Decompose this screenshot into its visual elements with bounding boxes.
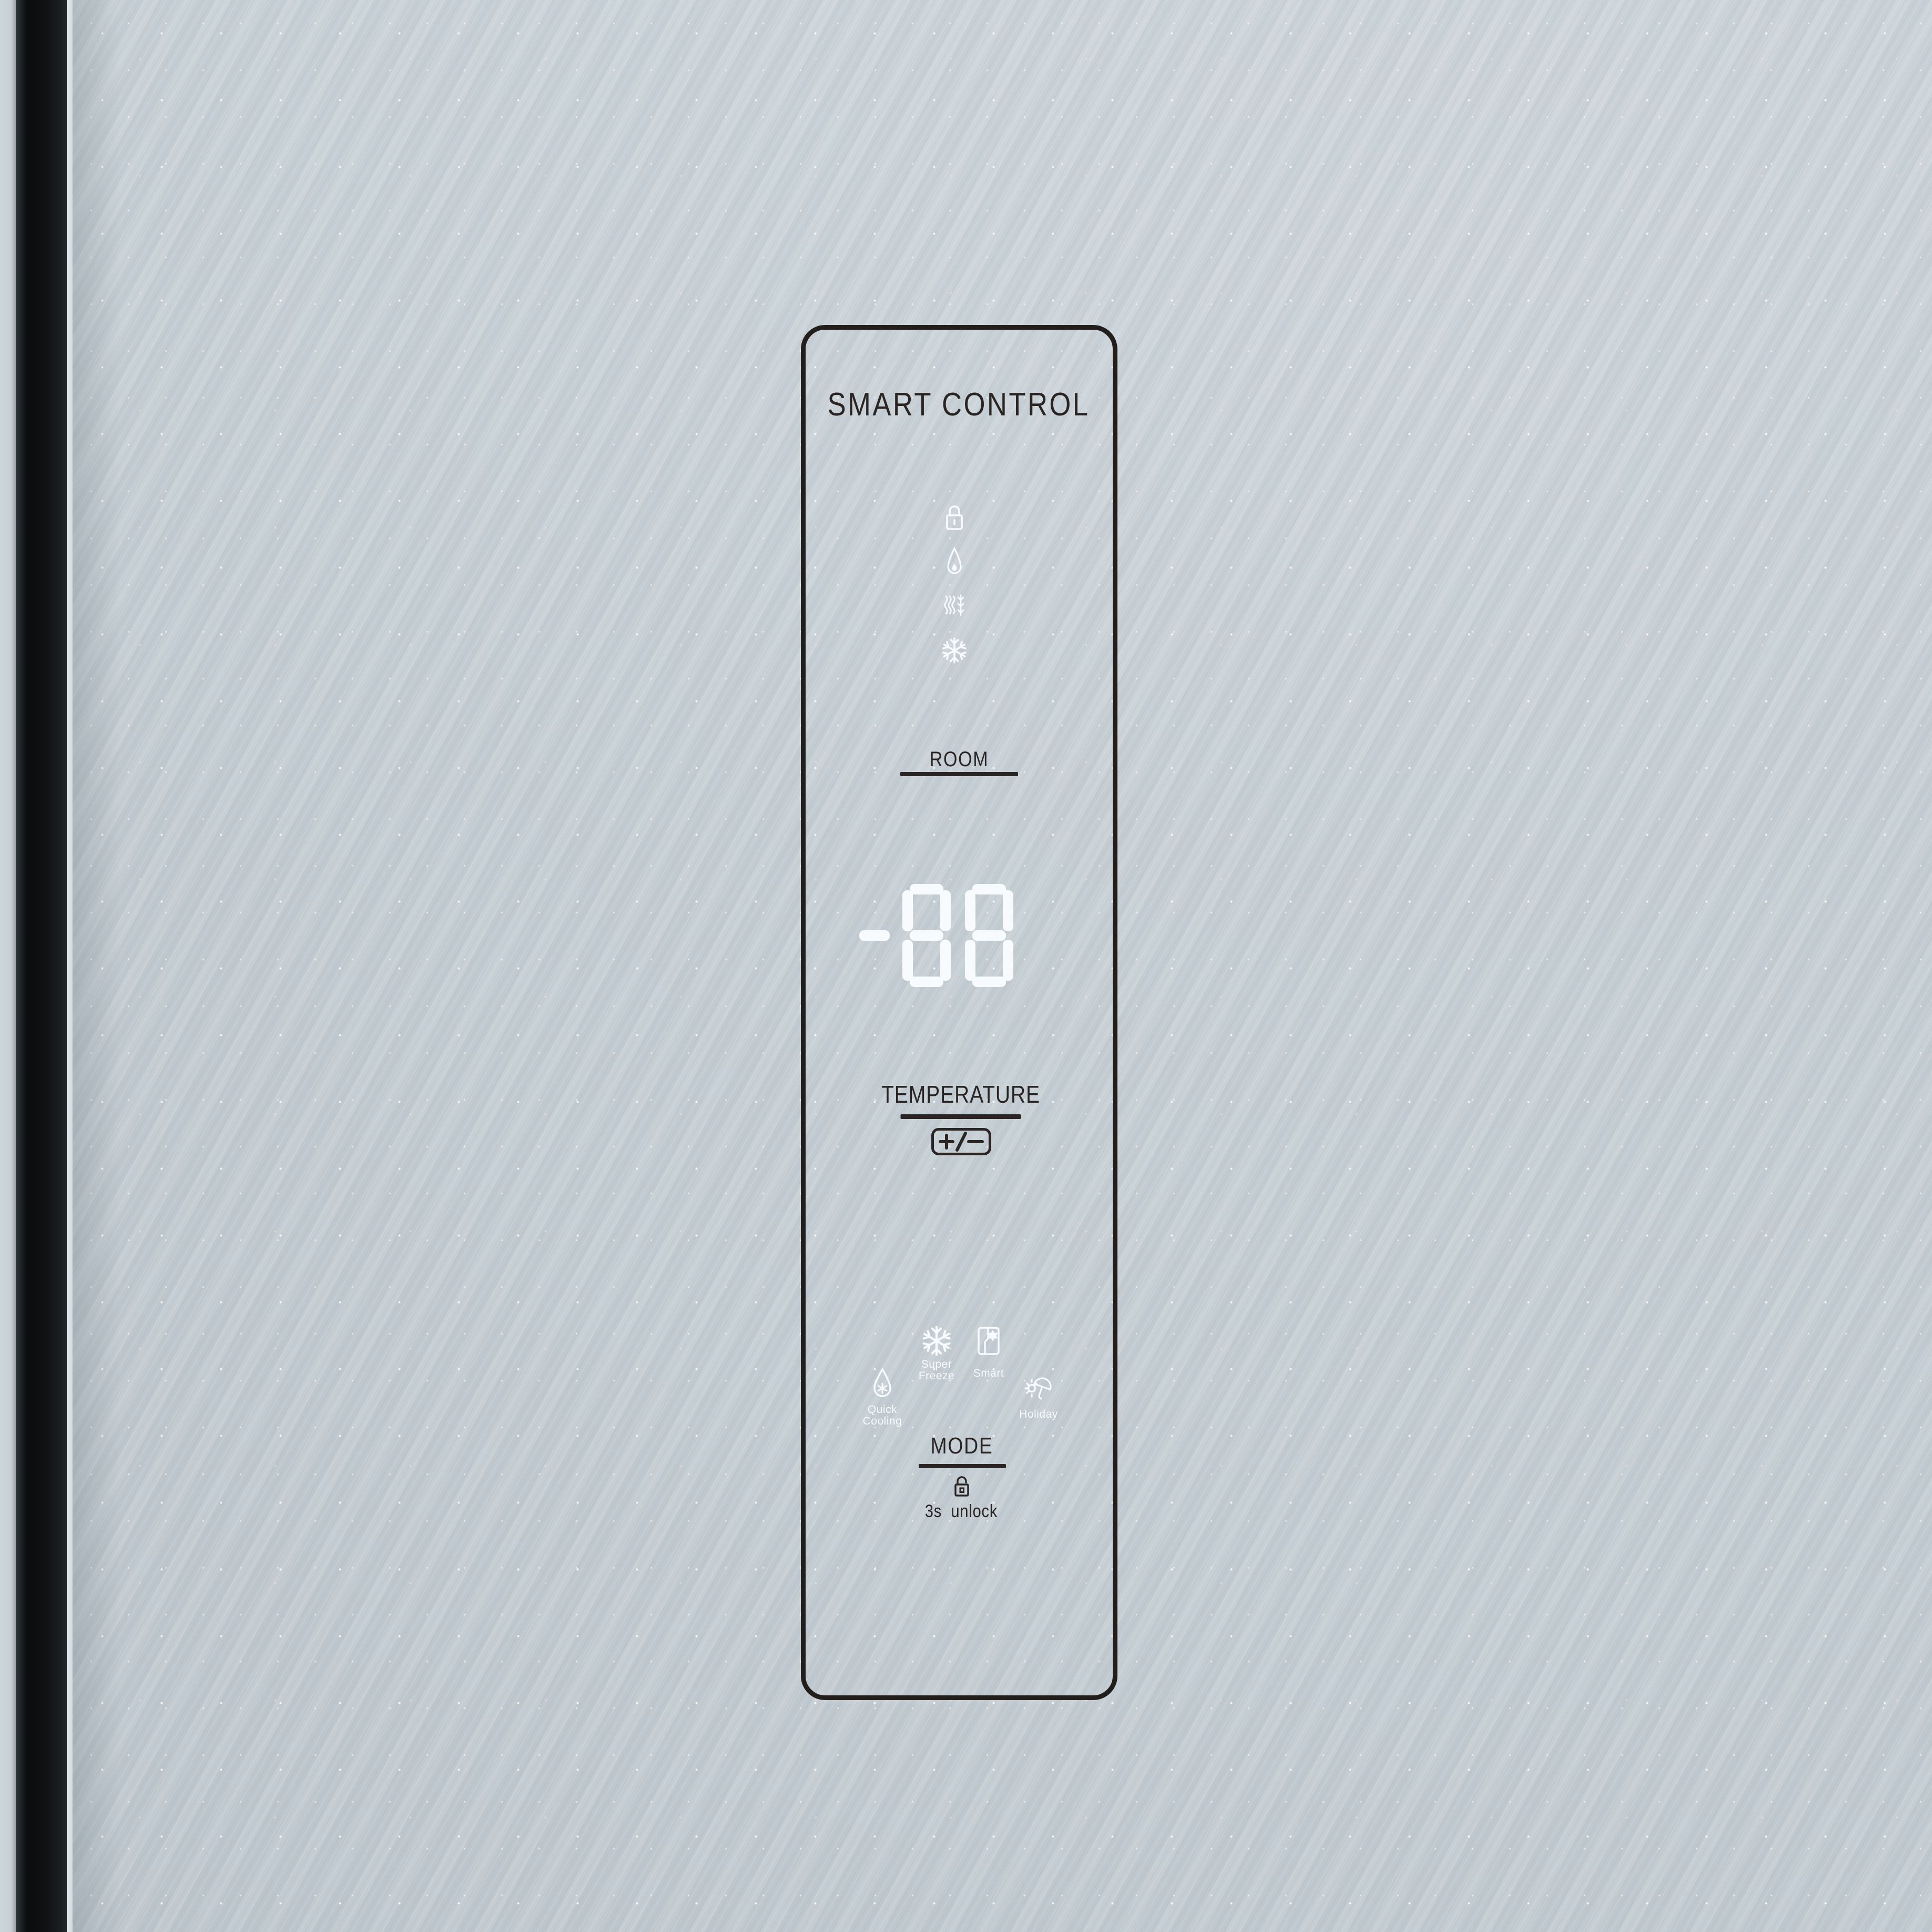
smart-control-panel: SMART CONTROL [801, 325, 1117, 1700]
adjacent-door-edge [0, 0, 16, 1932]
water-drop-icon [947, 547, 962, 576]
door-edge-highlight [67, 0, 73, 1932]
quick-cooling-label-line2: Cooling [863, 1416, 902, 1427]
unlock-open-icon [954, 1476, 971, 1497]
holiday-label: Holiday [1019, 1409, 1058, 1420]
quick-cooling-icon [873, 1368, 892, 1398]
holiday-icon [1024, 1375, 1053, 1401]
temperature-label: TEMPERATURE [867, 1082, 1054, 1107]
lock-icon [945, 504, 963, 531]
temperature-plus-minus-button[interactable]: +/− [931, 1128, 991, 1155]
snowflake-icon [941, 637, 968, 664]
quick-cooling-label-line1: Quick [868, 1404, 897, 1416]
super-freeze-label-line1: Super [921, 1359, 952, 1370]
smart-icon [978, 1327, 1000, 1355]
mode-label: MODE [925, 1434, 999, 1458]
super-freeze-icon [921, 1326, 952, 1356]
mode-underline [919, 1464, 1006, 1468]
plus-slash-minus-icon [938, 1131, 984, 1152]
smart-label: Smart [973, 1368, 1004, 1379]
temperature-underline [901, 1114, 1021, 1119]
defrost-icon [943, 594, 965, 616]
unlock-hint: 3s unlock [919, 1502, 1004, 1521]
super-freeze-label-line2: Freeze [919, 1370, 954, 1382]
fridge-door-photo: SMART CONTROL [0, 0, 1932, 1932]
room-label: ROOM [924, 748, 994, 770]
door-seam-gap [16, 0, 67, 1932]
panel-title: SMART CONTROL [804, 388, 1113, 422]
temperature-display [859, 884, 1013, 987]
room-underline [900, 772, 1018, 776]
